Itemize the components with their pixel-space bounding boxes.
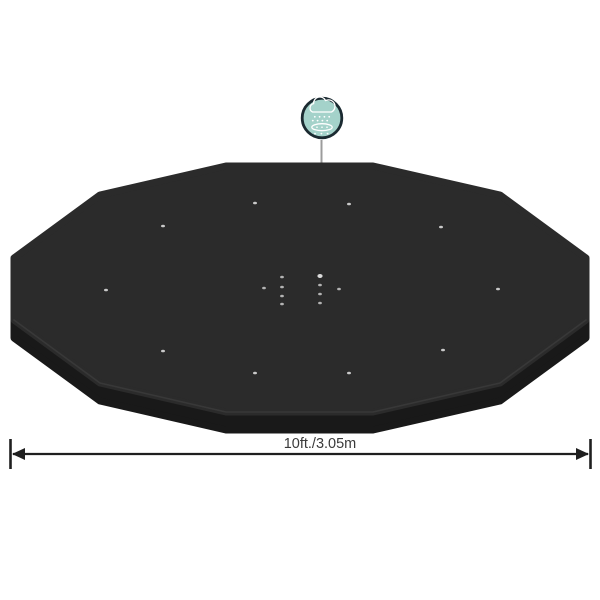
cover-top-surface xyxy=(14,166,586,412)
dimension-annotation: 10ft./3.05m xyxy=(11,436,591,469)
pool-cover xyxy=(14,166,586,430)
product-image: 10ft./3.05m xyxy=(0,0,600,600)
arrow-right-icon xyxy=(576,448,589,460)
arrow-left-icon xyxy=(12,448,25,460)
dimension-label: 10ft./3.05m xyxy=(284,436,357,452)
icon-circle xyxy=(302,98,342,138)
drain-hole-callout-target xyxy=(317,274,322,278)
rain-drain-icon xyxy=(302,97,342,138)
product-illustration: 10ft./3.05m xyxy=(0,0,600,600)
